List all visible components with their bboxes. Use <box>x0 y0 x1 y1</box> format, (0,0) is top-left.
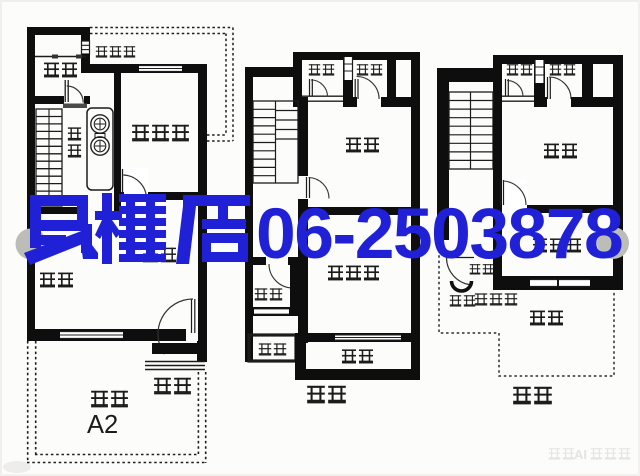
svg-text:AI: AI <box>574 447 587 462</box>
svg-text:A2: A2 <box>87 411 118 439</box>
svg-text:06-2503878: 06-2503878 <box>256 194 622 274</box>
